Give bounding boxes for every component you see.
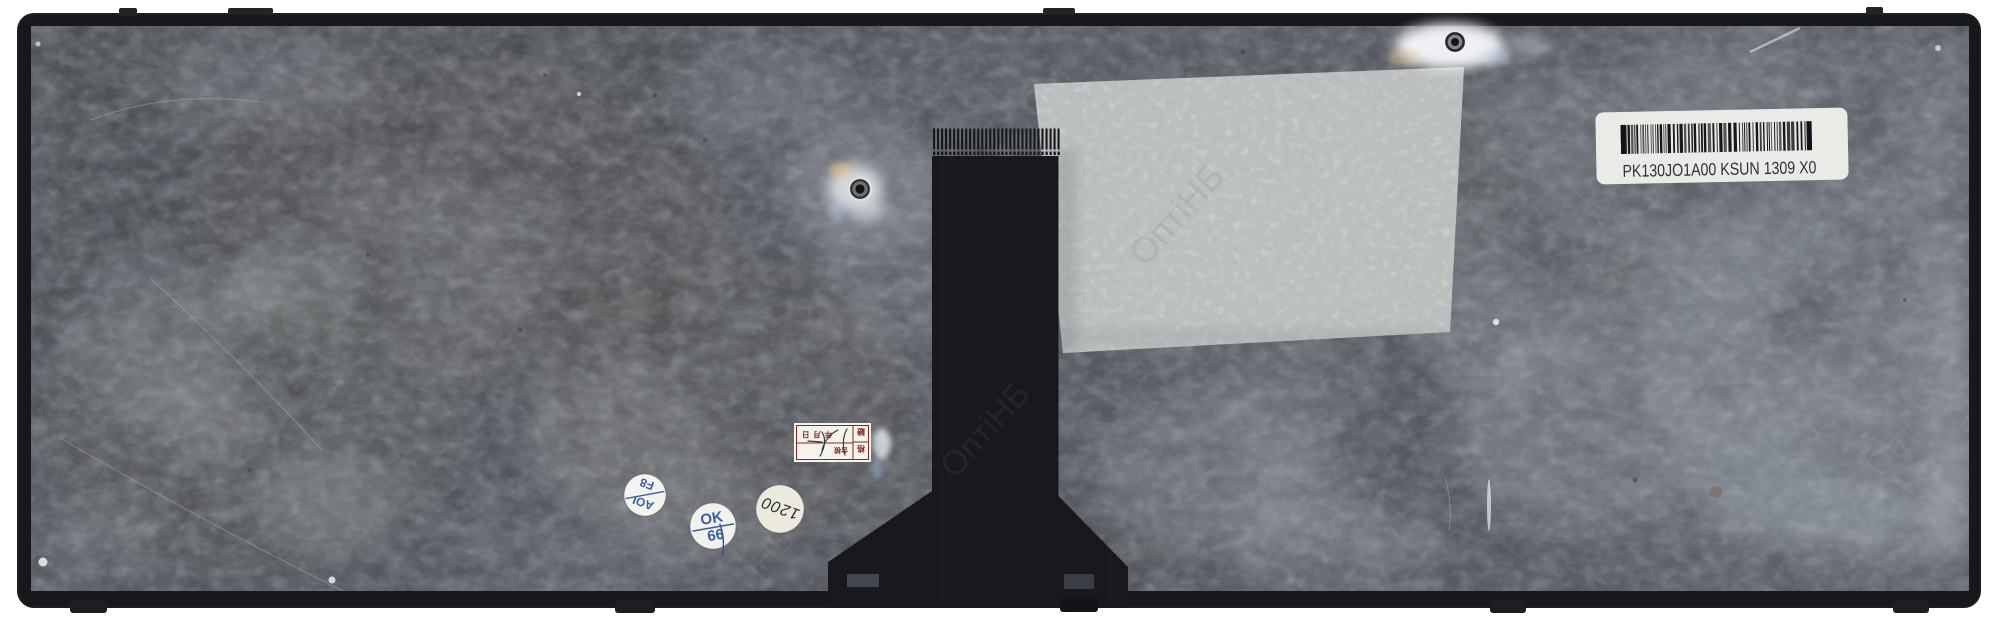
svg-text:驗: 驗 xyxy=(857,427,865,437)
svg-text:合檢: 合檢 xyxy=(833,446,849,455)
svg-text:PK130JO1A00 KSUN 1309 X0: PK130JO1A00 KSUN 1309 X0 xyxy=(1622,157,1817,181)
svg-text:格: 格 xyxy=(856,444,865,454)
